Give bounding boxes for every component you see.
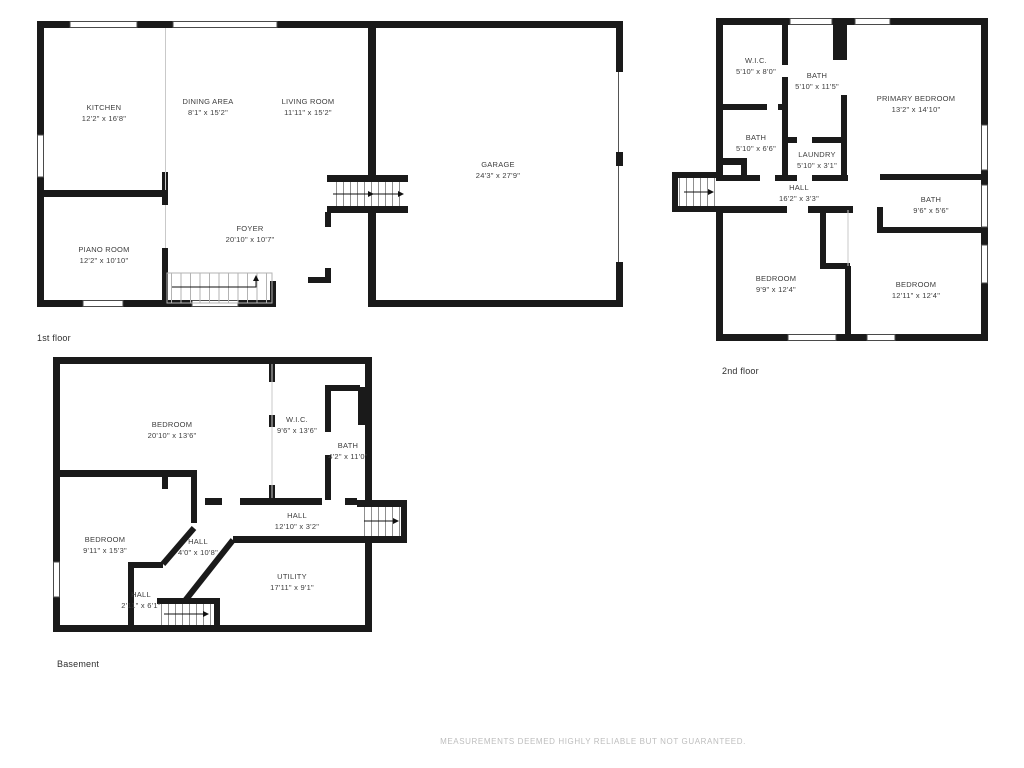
room-label-kitchen: KITCHEN 12'2" x 16'8"	[82, 102, 126, 124]
floorplan-linework	[0, 0, 1024, 768]
room-dims: 9'9" x 12'4"	[756, 284, 797, 295]
room-label-bedroom-left-2f: BEDROOM 9'9" x 12'4"	[756, 273, 797, 295]
living-room-staircase	[330, 182, 405, 206]
room-dims: 20'10" x 10'7"	[226, 234, 275, 245]
room-dims: 20'10" x 13'6"	[148, 430, 197, 441]
foyer-staircase	[167, 273, 272, 303]
room-label-hall-diag-bsmt: HALL 4'0" x 10'8"	[178, 536, 218, 558]
room-label-bedroom-right-2f: BEDROOM 12'11" x 12'4"	[892, 279, 940, 301]
room-label-wic-2f: W.I.C. 5'10" x 8'0"	[736, 55, 776, 77]
room-label-bedroom-top-bsmt: BEDROOM 20'10" x 13'6"	[148, 419, 197, 441]
room-name: BATH	[328, 440, 367, 451]
room-name: KITCHEN	[82, 102, 126, 113]
room-name: DINING AREA	[182, 96, 233, 107]
second-floor-plan	[672, 18, 988, 341]
first-floor-windows	[38, 22, 278, 307]
basement-walls	[53, 357, 407, 632]
room-dims: 8'1" x 15'2"	[182, 107, 233, 118]
room-name: LAUNDRY	[797, 149, 837, 160]
room-name: HALL	[779, 182, 819, 193]
room-name: W.I.C.	[736, 55, 776, 66]
room-name: BATH	[736, 132, 776, 143]
room-label-hall-main-bsmt: HALL 12'10" x 3'2"	[275, 510, 319, 532]
caption-basement: Basement	[57, 659, 99, 669]
room-name: BEDROOM	[892, 279, 940, 290]
room-dims: 12'2" x 10'10"	[78, 255, 129, 266]
room-name: W.I.C.	[277, 414, 317, 425]
room-name: HALL	[178, 536, 218, 547]
room-dims: 9'11" x 15'3"	[83, 545, 127, 556]
room-name: HALL	[275, 510, 319, 521]
room-dims: 5'10" x 3'1"	[797, 160, 837, 171]
room-label-bath-left-2f: BATH 5'10" x 6'6"	[736, 132, 776, 154]
room-name: BATH	[913, 194, 949, 205]
room-label-bath-right-2f: BATH 9'6" x 5'6"	[913, 194, 949, 216]
room-dims: 2'11" x 6'1"	[121, 600, 160, 611]
caption-1st-floor: 1st floor	[37, 333, 71, 343]
basement-windows	[54, 562, 60, 597]
room-name: BATH	[795, 70, 839, 81]
room-label-primary-bedroom: PRIMARY BEDROOM 13'2" x 14'10"	[877, 93, 956, 115]
room-label-wic-bsmt: W.I.C. 9'6" x 13'6"	[277, 414, 317, 436]
room-dims: 4'2" x 11'0"	[328, 451, 367, 462]
room-name: BEDROOM	[756, 273, 797, 284]
room-name: PIANO ROOM	[78, 244, 129, 255]
caption-2nd-floor: 2nd floor	[722, 366, 759, 376]
room-dims: 9'6" x 13'6"	[277, 425, 317, 436]
room-label-dining-area: DINING AREA 8'1" x 15'2"	[182, 96, 233, 118]
room-dims: 17'11" x 9'1"	[270, 582, 314, 593]
basement-bottom-staircase	[160, 604, 214, 625]
room-name: BEDROOM	[83, 534, 127, 545]
room-label-piano-room: PIANO ROOM 12'2" x 10'10"	[78, 244, 129, 266]
room-dims: 16'2" x 3'3"	[779, 193, 819, 204]
second-floor-staircase	[678, 178, 716, 206]
room-name: PRIMARY BEDROOM	[877, 93, 956, 104]
room-label-foyer: FOYER 20'10" x 10'7"	[226, 223, 275, 245]
room-label-living-room: LIVING ROOM 11'11" x 15'2"	[282, 96, 335, 118]
room-name: FOYER	[226, 223, 275, 234]
second-floor-walls	[672, 18, 988, 341]
room-dims: 12'2" x 16'8"	[82, 113, 126, 124]
basement-plan	[53, 357, 407, 632]
room-name: UTILITY	[270, 571, 314, 582]
room-label-hall-2f: HALL 16'2" x 3'3"	[779, 182, 819, 204]
room-dims: 5'10" x 8'0"	[736, 66, 776, 77]
room-label-garage: GARAGE 24'3" x 27'9"	[476, 159, 520, 181]
room-label-bath-mid-2f: BATH 5'10" x 11'5"	[795, 70, 839, 92]
room-dims: 24'3" x 27'9"	[476, 170, 520, 181]
room-dims: 4'0" x 10'8"	[178, 547, 218, 558]
room-label-hall-small-bsmt: HALL 2'11" x 6'1"	[121, 589, 160, 611]
room-dims: 12'11" x 12'4"	[892, 290, 940, 301]
floorplan-page: KITCHEN 12'2" x 16'8" DINING AREA 8'1" x…	[0, 0, 1024, 768]
room-dims: 12'10" x 3'2"	[275, 521, 319, 532]
room-dims: 5'10" x 6'6"	[736, 143, 776, 154]
room-label-bath-bsmt: BATH 4'2" x 11'0"	[328, 440, 367, 462]
room-name: BEDROOM	[148, 419, 197, 430]
room-name: HALL	[121, 589, 160, 600]
room-dims: 13'2" x 14'10"	[877, 104, 956, 115]
room-name: LIVING ROOM	[282, 96, 335, 107]
disclaimer-text: MEASUREMENTS DEEMED HIGHLY RELIABLE BUT …	[440, 737, 746, 746]
basement-right-staircase	[362, 507, 401, 536]
room-dims: 11'11" x 15'2"	[282, 107, 335, 118]
room-name: GARAGE	[476, 159, 520, 170]
room-dims: 9'6" x 5'6"	[913, 205, 949, 216]
room-label-laundry: LAUNDRY 5'10" x 3'1"	[797, 149, 837, 171]
room-label-bedroom-bottom-bsmt: BEDROOM 9'11" x 15'3"	[83, 534, 127, 556]
room-label-utility: UTILITY 17'11" x 9'1"	[270, 571, 314, 593]
room-dims: 5'10" x 11'5"	[795, 81, 839, 92]
